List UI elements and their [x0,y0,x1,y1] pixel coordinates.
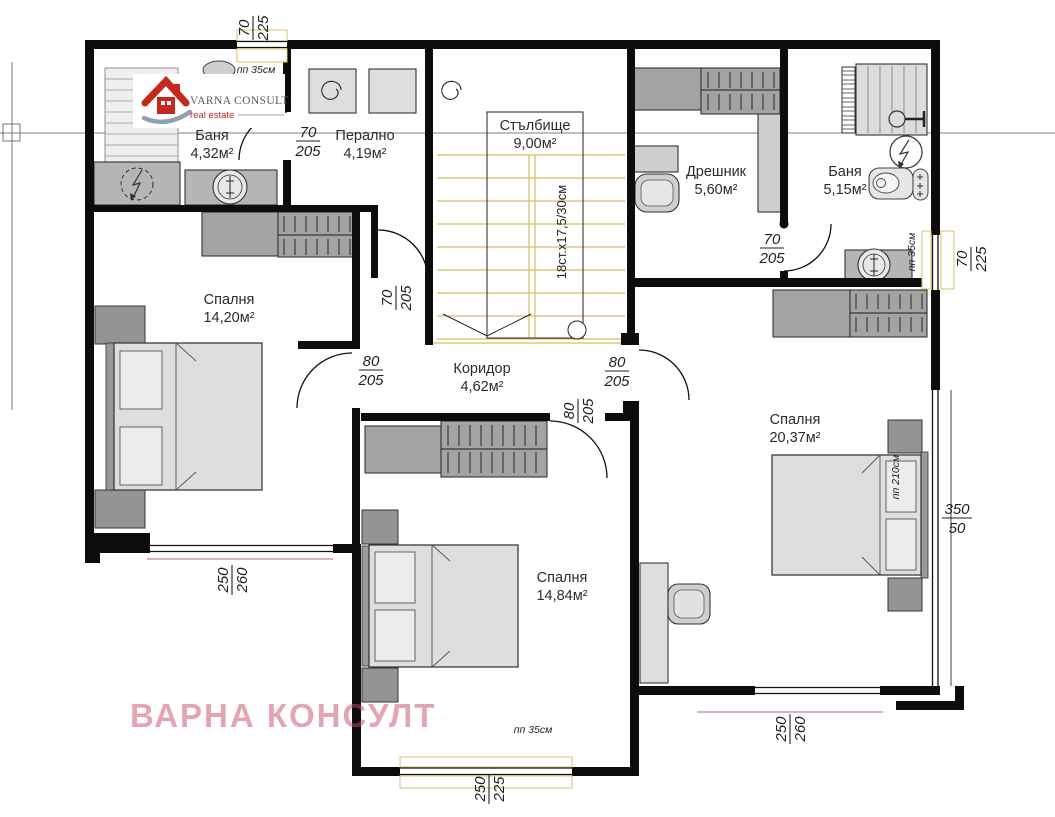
wall-top-left [85,40,237,49]
room-name: Коридор [453,361,510,377]
dim-value: 250 [472,776,489,803]
bed-headboard [362,546,369,666]
door-swing-arc [784,224,831,271]
dim-value: 205 [758,250,785,267]
wall-bottom-right-connector [955,686,964,710]
room-label-bath1: Баня 4,32м² [190,128,233,162]
washing-machine-2 [369,69,416,113]
window-right [922,231,954,290]
dim-stair-door: 70 205 [379,285,415,312]
dim-right-window: 70 225 [954,246,990,273]
dim-value: 350 [944,501,970,518]
shower-head-icon [889,111,905,127]
room-area: 4,62м² [460,379,503,395]
door-bedroom-middle-arc [550,421,607,478]
grid-marker [3,124,20,141]
pillow [120,351,162,409]
room-label-staircase: Стълбище 9,00м² [500,118,571,152]
chair-seat [674,590,704,618]
armchair-seat [641,180,673,206]
brush-holder-marks [917,174,923,197]
bed-headboard [921,452,928,578]
desk [640,563,668,683]
logo-house-chimney-icon [174,84,180,94]
dim-value: 80 [609,354,626,371]
room-name: Баня [195,128,228,144]
nightstand [362,510,398,544]
wall-bottom-middle-a [352,767,400,776]
logo: VARNA CONSULT real estate [133,74,289,128]
room-name: Дрешник [686,164,747,180]
wall-bottom-right-b [880,686,940,695]
logo-house-body-icon [157,97,175,114]
dim-value: 260 [234,567,251,594]
stair-note: 18ст.х17,5/30см [554,185,569,279]
wardrobe-cabinet [365,426,441,473]
dim-value: 50 [949,520,966,537]
parapet-note-right: пп 35см [906,233,918,272]
wardrobe-cabinet [202,212,278,256]
dim-value: 205 [603,373,630,390]
floor-plan-drawing: Баня 4,32м² Перално 4,19м² Стълбище 9,00… [0,0,1055,817]
wall-bedroom-left-upper [352,212,360,345]
stair-start-marker [568,321,586,339]
wall-bottom-middle-b [572,767,639,776]
bedroom-right-furniture [640,290,928,683]
dim-value: 70 [764,231,781,248]
dim-right-bottom-window: 250 260 [773,714,809,744]
room-name: Перално [335,128,394,144]
room-label-corridor: Коридор 4,62м² [453,361,510,395]
dim-value: 70 [300,124,317,141]
dresser [633,146,678,172]
logo-brand-name: VARNA CONSULT [190,95,289,107]
room-label-bedroom-right: Спалня 20,37м² [769,412,820,446]
room-name: Спалня [204,292,255,308]
wall-dressing-bath2-upper [780,49,788,222]
door-leaf [371,212,378,278]
wall-bottom-right-a [630,686,755,695]
nightstand [888,420,922,453]
room-area: 5,60м² [694,182,737,198]
bedroom-left-furniture [95,212,353,528]
wall-bath1-bottom [94,205,378,212]
room-name: Стълбище [500,118,571,134]
room-label-bath2: Баня 5,15м² [823,164,866,198]
wall-right-middle [931,290,940,390]
pillow [886,519,916,570]
room-area: 9,00м² [513,136,556,152]
wall-jamb [623,401,639,413]
dim-value: 250 [215,567,232,594]
room-area: 5,15м² [823,182,866,198]
parapet-note-bedroom: пп 210см [890,455,902,499]
door-passage [371,212,428,280]
window-right-big [933,390,952,686]
dim-bedroom-middle-door: 80 205 [561,398,597,425]
pillow [375,610,415,661]
wardrobe-cabinet [773,290,850,337]
annotations: 18ст.х17,5/30см пп 35см пп 35см пп 210см… [237,64,918,736]
tall-cabinet [758,114,782,212]
room-area: 20,37м² [769,430,820,446]
room-name: Баня [828,164,861,180]
dim-value: 225 [491,776,508,803]
wall-stair-left [425,49,433,345]
door-swing-arc [378,230,428,280]
room-area: 14,84м² [536,588,587,604]
dim-bath1-door: 70 205 [294,124,321,160]
pillow [375,552,415,603]
dim-left-bottom-window: 250 260 [215,565,251,595]
door-bedroom-right-arc [639,350,689,400]
wall-bottom-left-corner [85,533,150,553]
parapet-note-bottom: пп 35см [514,724,553,736]
wall-step-vertical [630,686,639,776]
room-area: 4,32м² [190,146,233,162]
wall-right-upper [931,40,940,235]
logo-tagline: real estate [190,110,234,121]
room-area: 14,20м² [203,310,254,326]
logo-house-window-icon [161,101,165,105]
bed-headboard [106,343,114,490]
wall-jamb [621,333,639,345]
watermark-text: ВАРНА КОНСУЛТ [130,697,436,734]
room-name: Спалня [537,570,588,586]
nightstand [95,490,145,528]
dim-value: 260 [792,716,809,743]
wall-bedrooms-divider [630,413,639,686]
dim-value: 205 [357,372,384,389]
spiral-icon [442,81,461,99]
nightstand [95,306,145,344]
dim-value: 70 [236,19,253,36]
dim-value: 70 [954,250,971,267]
wall-dressing-bath2-lower [780,271,788,283]
wall-left [85,40,94,553]
dim-value: 80 [363,353,380,370]
door-hinge [780,220,789,229]
wall-top-right [287,40,940,49]
floor-plan-canvas: Баня 4,32м² Перално 4,19м² Стълбище 9,00… [0,0,1055,817]
dim-value: 80 [561,402,578,419]
wall-mid-left-vertical [352,544,361,776]
corridor-wardrobe [365,421,547,477]
wall-corridor-bottom-a [361,413,550,421]
dim-bedroom-right-door: 80 205 [603,354,630,390]
wall-bedroom-left-lower [352,408,360,544]
dim-dressing-door: 70 205 [758,231,785,267]
dim-value: 70 [379,289,396,306]
dim-bedroom-left-door: 80 205 [357,353,384,389]
wardrobe-hanger-section [701,68,780,114]
bedroom-middle-furniture [362,510,518,702]
wall-bedroom-left-stub [298,341,360,349]
logo-house-window-icon [167,101,171,105]
wall-bath1-laundry-lower [283,160,291,205]
dim-big-window: 350 50 [942,501,972,537]
room-name: Спалня [770,412,821,428]
window-bottom-left [147,546,333,560]
wall-stair-right [627,49,635,345]
dim-value: 205 [398,285,415,312]
dim-value: 205 [580,398,597,425]
room-area: 4,19м² [343,146,386,162]
room-label-bedroom-left: Спалня 14,20м² [203,292,254,326]
laundry-fixtures [309,69,461,113]
room-label-laundry: Перално 4,19м² [335,128,394,162]
wall-bottom-right-step [896,701,964,710]
towel-radiator [842,67,855,133]
door-bathroom2 [780,220,832,272]
dim-value: 225 [973,246,990,273]
dim-value: 250 [773,716,790,743]
door-bedroom-left-arc [297,353,352,408]
wall-step [85,553,100,563]
pillow [120,427,162,485]
washing-machine-1 [309,69,356,113]
room-label-bedroom-middle: Спалня 14,84м² [536,570,587,604]
dim-value: 205 [294,143,321,160]
nightstand [888,578,922,611]
room-label-dressing: Дрешник 5,60м² [686,164,747,198]
wardrobe-cabinet [633,68,701,110]
dim-value: 225 [255,15,272,42]
